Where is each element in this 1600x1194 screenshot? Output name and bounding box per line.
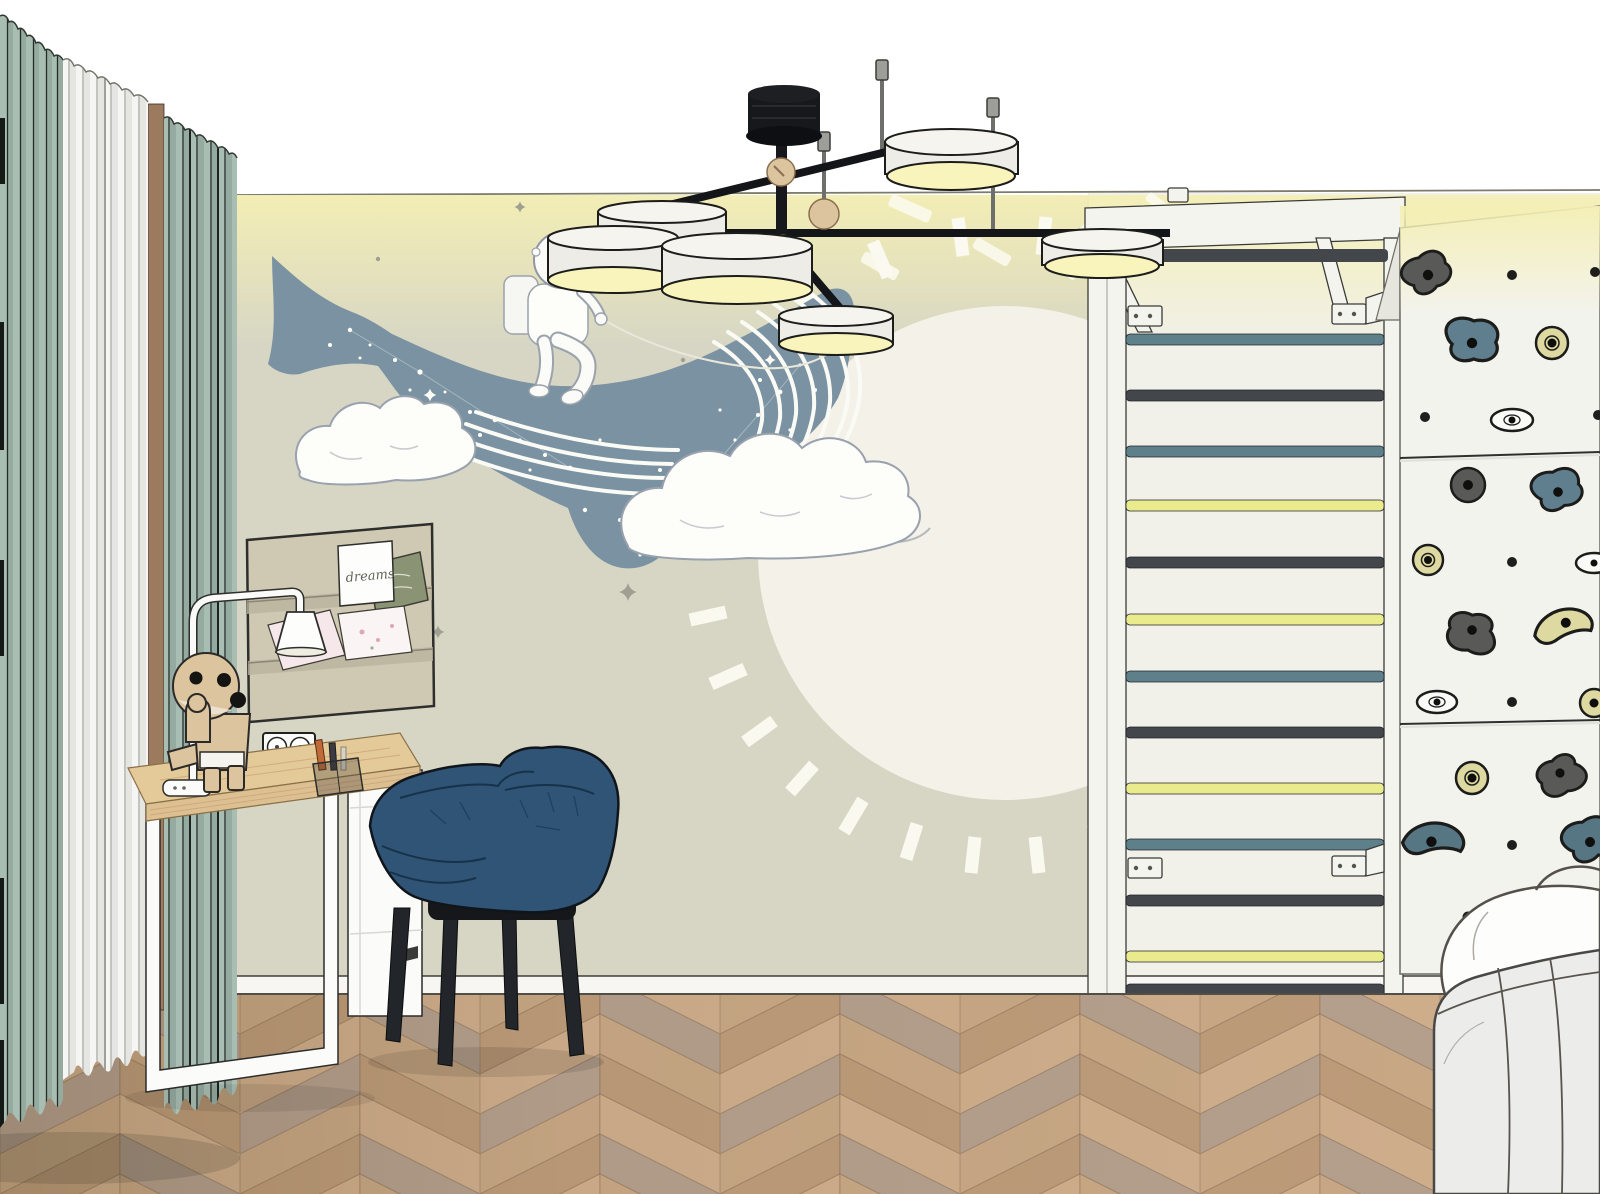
wall-bar-rung xyxy=(1126,500,1384,511)
wall-bar-rung xyxy=(1126,727,1384,738)
climbing-hold xyxy=(1413,545,1443,575)
wall-bar-rung xyxy=(1126,614,1384,625)
lamp-shade-drum xyxy=(885,129,1018,190)
wall-bar-rung xyxy=(1126,839,1384,850)
wall-bar-rung xyxy=(1126,671,1384,682)
room-render: dreams xyxy=(0,0,1600,1194)
wall-bar-rung xyxy=(1126,334,1384,345)
climbing-wall xyxy=(1376,206,1600,974)
wall-bar-rung xyxy=(1126,783,1384,794)
wall-bar-rung xyxy=(1126,390,1384,401)
climbing-hold xyxy=(1580,689,1600,717)
wall-bar-rung xyxy=(1126,951,1384,962)
astronaut-hand xyxy=(595,313,607,325)
lamp-shade-drum xyxy=(779,306,893,355)
fixture-canopy xyxy=(746,85,822,146)
wood-sphere xyxy=(809,199,839,229)
climbing-hold xyxy=(1491,409,1533,431)
pinboard-card-dreams: dreams xyxy=(338,541,395,606)
climbing-hold xyxy=(1576,553,1600,573)
wall-bar-rung xyxy=(1126,557,1384,568)
pinboard: dreams xyxy=(247,524,434,722)
climbing-hold xyxy=(1456,762,1488,794)
lamp-shade-drum xyxy=(1042,229,1163,278)
climbing-hold xyxy=(1536,327,1568,359)
wall-bar-rung xyxy=(1126,446,1384,457)
astronaut-boot xyxy=(529,385,549,397)
lamp-shade-drum xyxy=(548,226,678,293)
wall-bar-rung xyxy=(1126,895,1384,906)
fixture-stem xyxy=(776,136,787,240)
climbing-hold xyxy=(1451,468,1485,502)
climbing-hold xyxy=(1417,691,1457,713)
climbing-panel xyxy=(1400,206,1600,974)
lamp-shade-drum xyxy=(662,233,812,304)
